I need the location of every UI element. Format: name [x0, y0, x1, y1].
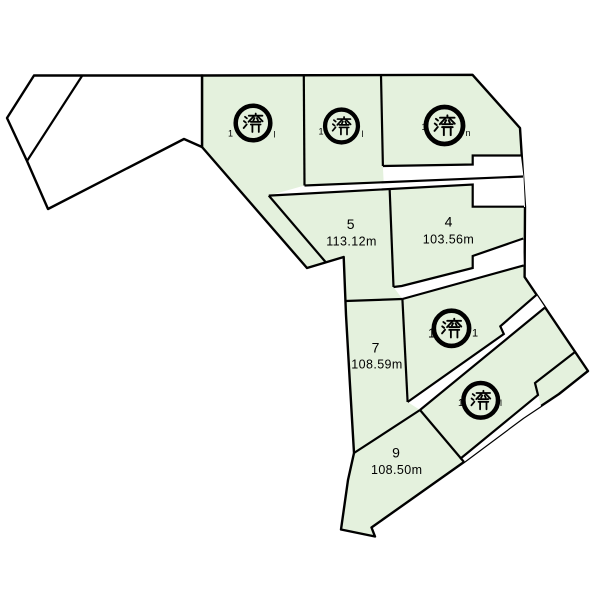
svg-text:1: 1 [422, 122, 427, 132]
svg-text:l: l [274, 130, 276, 140]
svg-text:9: 9 [392, 445, 400, 461]
svg-text:n: n [466, 128, 471, 138]
svg-text:1: 1 [472, 328, 478, 340]
svg-text:113.12m: 113.12m [326, 235, 377, 249]
svg-text:7: 7 [372, 340, 380, 356]
svg-text:103.56m: 103.56m [423, 233, 474, 247]
svg-text:5: 5 [347, 216, 355, 232]
svg-text:108.50m: 108.50m [371, 463, 422, 477]
svg-text:1: 1 [228, 129, 233, 139]
svg-text:l: l [362, 129, 364, 139]
svg-text:1: 1 [319, 127, 324, 137]
svg-text:1: 1 [458, 398, 464, 409]
svg-text:1: 1 [428, 326, 435, 341]
svg-text:108.59m: 108.59m [351, 358, 402, 372]
svg-text:4: 4 [445, 214, 453, 230]
svg-text:l: l [500, 398, 502, 408]
